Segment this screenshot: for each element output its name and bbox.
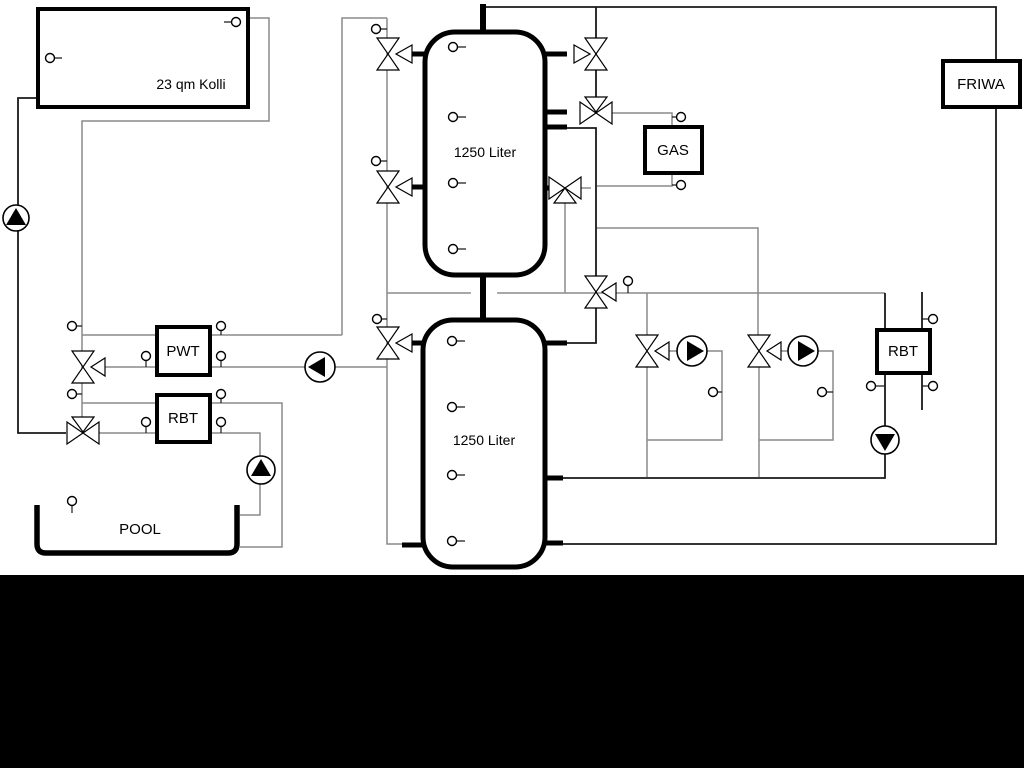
temp-sensor [929,315,938,324]
temp-sensor [68,322,77,331]
pump-circuit-2 [788,336,818,366]
solar-collector-box [38,9,248,107]
bottom-black-band [0,575,1024,768]
temp-sensor-pwt-right [217,352,226,361]
temp-sensor-circuit-2 [818,388,827,397]
rbt-left-label: RBT [168,410,198,427]
temp-sensor-collector-top [232,18,241,27]
pump-pool [247,456,275,484]
hydraulic-schematic: 23 qm Kolli 1250 Liter 1250 Liter GAS FR… [0,0,1024,768]
temp-sensor-tank1-1 [449,43,458,52]
rbt-right-label: RBT [888,343,918,360]
pump-circuit-1 [677,336,707,366]
temp-sensor [373,315,382,324]
gas-label: GAS [657,142,689,159]
temp-sensor-tank2-2 [448,403,457,412]
pump-pwt-secondary [305,352,335,382]
temp-sensor-circuit-1 [709,388,718,397]
temp-sensor-pwt-left [142,352,151,361]
temp-sensor-tank2-3 [448,471,457,480]
temp-sensor-rbt-right [217,418,226,427]
temp-sensor-tank2-4 [448,537,457,546]
temp-sensor [68,390,77,399]
temp-sensor-tank2-1 [448,337,457,346]
temp-sensor [372,25,381,34]
temp-sensor-tank1-3 [449,179,458,188]
temp-sensor-pwt-top [217,322,226,331]
temp-sensor-gas-return [677,181,686,190]
temp-sensor-gas-supply [677,113,686,122]
hydraulic-schematic-page: 23 qm Kolli 1250 Liter 1250 Liter GAS FR… [0,0,1024,768]
temp-sensor-collector-left [46,54,55,63]
pump-rbt-right [871,426,899,454]
temp-sensor-rbt-top [217,390,226,399]
friwa-label: FRIWA [957,76,1005,93]
pool-label: POOL [119,521,161,538]
temp-sensor [867,382,876,391]
temp-sensor-tank1-4 [449,245,458,254]
pwt-label: PWT [166,343,199,360]
temp-sensor [929,382,938,391]
tank-top-label: 1250 Liter [454,144,517,160]
temp-sensor [624,277,633,286]
temp-sensor-pool [68,497,77,506]
tank-bottom-label: 1250 Liter [453,432,516,448]
collector-label: 23 qm Kolli [156,76,225,92]
temp-sensor-tank1-2 [449,113,458,122]
temp-sensor [372,157,381,166]
temp-sensor-rbt-left [142,418,151,427]
pump-collector [3,205,29,231]
